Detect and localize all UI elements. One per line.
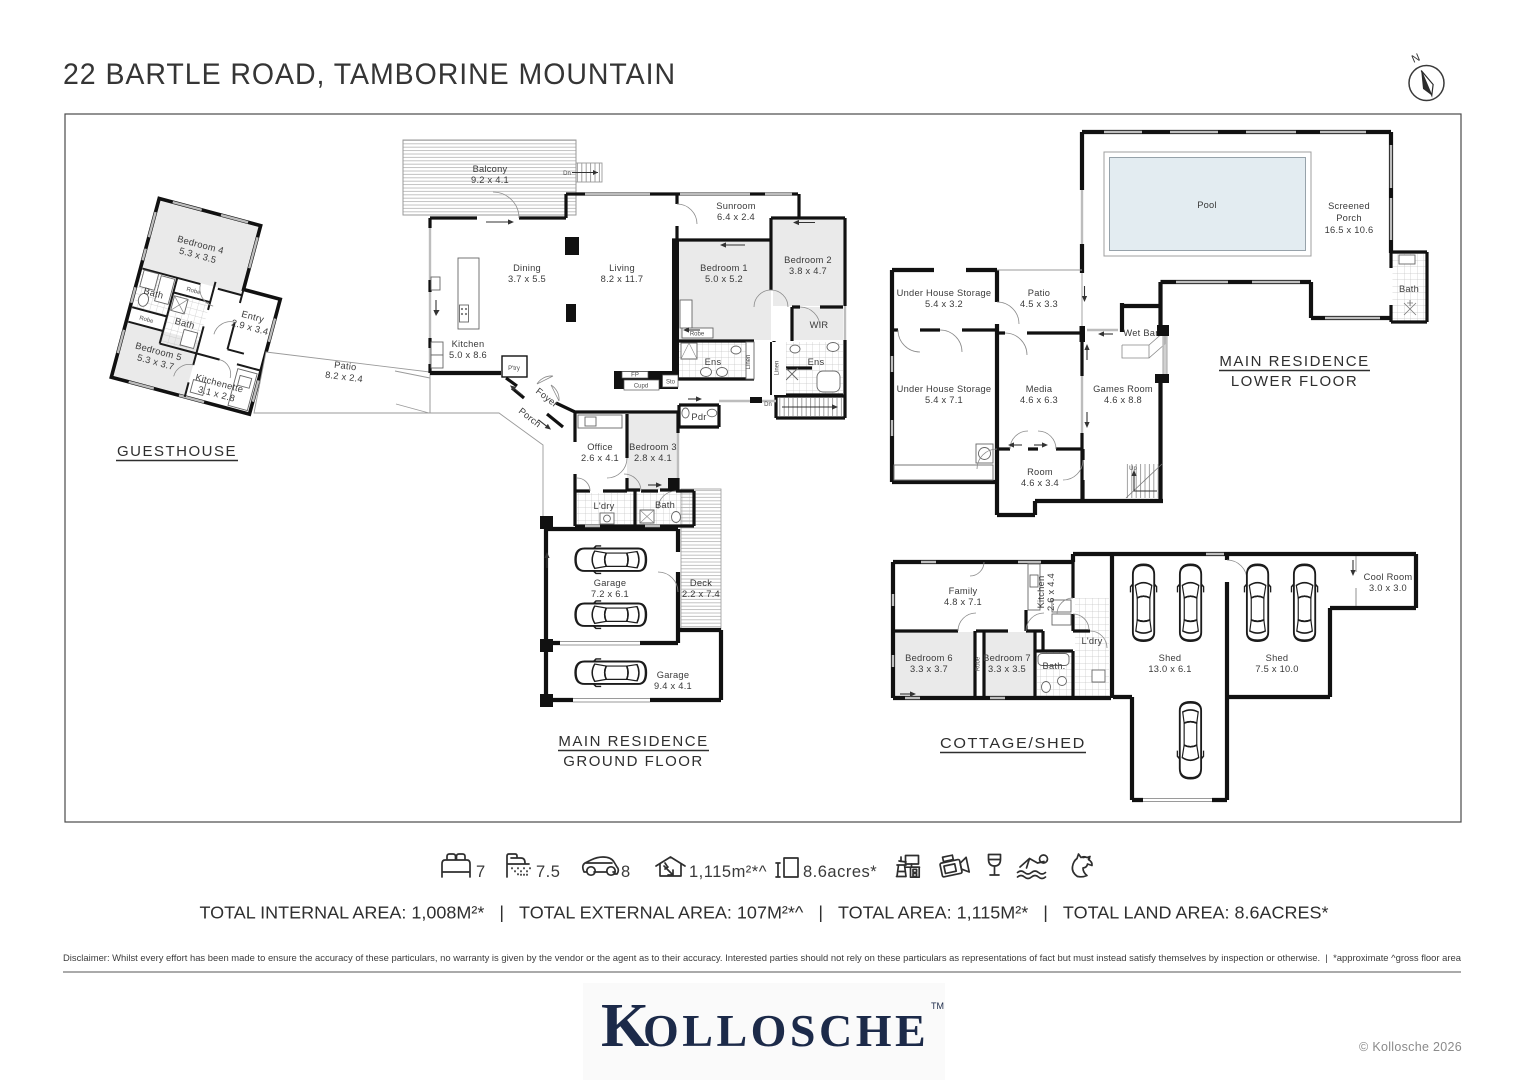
svg-text:Dining: Dining xyxy=(513,263,541,273)
svg-text:Linen: Linen xyxy=(775,361,781,376)
svg-text:13.0 x 6.1: 13.0 x 6.1 xyxy=(1148,664,1191,674)
svg-text:Garage: Garage xyxy=(657,670,690,680)
svg-text:3.7 x 5.5: 3.7 x 5.5 xyxy=(508,274,546,284)
svg-text:Room: Room xyxy=(1027,467,1053,477)
svg-text:COTTAGE/SHED: COTTAGE/SHED xyxy=(940,735,1086,752)
svg-text:Under House Storage: Under House Storage xyxy=(897,288,992,298)
svg-text:5.4 x 3.2: 5.4 x 3.2 xyxy=(925,299,963,309)
svg-text:5.0 x 5.2: 5.0 x 5.2 xyxy=(705,274,743,284)
svg-text:1,115m²*^: 1,115m²*^ xyxy=(689,863,767,881)
svg-text:Robe: Robe xyxy=(690,332,705,338)
svg-text:Balcony: Balcony xyxy=(473,164,508,174)
svg-text:Under House Storage: Under House Storage xyxy=(897,384,992,394)
svg-text:4.6 x 3.4: 4.6 x 3.4 xyxy=(1021,478,1059,488)
svg-text:L'dry: L'dry xyxy=(1081,636,1102,646)
svg-text:K: K xyxy=(601,992,649,1060)
svg-text:Sunroom: Sunroom xyxy=(716,201,755,211)
svg-text:3.3 x 3.5: 3.3 x 3.5 xyxy=(988,664,1026,674)
svg-text:Up: Up xyxy=(1129,466,1137,472)
svg-text:Patio: Patio xyxy=(1028,288,1050,298)
svg-text:GUESTHOUSE: GUESTHOUSE xyxy=(117,443,237,460)
svg-text:LOWER FLOOR: LOWER FLOOR xyxy=(1231,373,1358,390)
svg-text:8.6acres*: 8.6acres* xyxy=(803,863,877,881)
svg-text:6.4 x 2.4: 6.4 x 2.4 xyxy=(717,212,755,222)
svg-text:Office: Office xyxy=(587,442,613,452)
svg-text:16.5 x 10.6: 16.5 x 10.6 xyxy=(1325,225,1374,235)
svg-text:22 BARTLE ROAD, TAMBORINE MOUN: 22 BARTLE ROAD, TAMBORINE MOUNTAIN xyxy=(63,58,676,91)
svg-text:4.8 x 7.1: 4.8 x 7.1 xyxy=(944,597,982,607)
svg-text:4.6 x 6.3: 4.6 x 6.3 xyxy=(1020,395,1058,405)
svg-text:Wet Bar: Wet Bar xyxy=(1123,328,1158,338)
svg-text:Garage: Garage xyxy=(594,578,627,588)
svg-text:Media: Media xyxy=(1026,384,1053,394)
svg-text:Bedroom 3: Bedroom 3 xyxy=(629,442,677,452)
svg-text:Bedroom 1: Bedroom 1 xyxy=(700,263,748,273)
svg-text:Linen: Linen xyxy=(746,355,752,370)
svg-text:3.8 x 4.7: 3.8 x 4.7 xyxy=(789,266,827,276)
svg-text:Shed: Shed xyxy=(1266,653,1289,663)
svg-text:7.5: 7.5 xyxy=(536,863,560,881)
svg-text:Pdr: Pdr xyxy=(691,412,706,422)
svg-text:7.5 x 10.0: 7.5 x 10.0 xyxy=(1255,664,1298,674)
svg-text:Bedroom 2: Bedroom 2 xyxy=(784,255,832,265)
svg-text:Deck: Deck xyxy=(690,578,712,588)
svg-text:Ens: Ens xyxy=(808,357,825,367)
svg-text:© Kollosche 2026: © Kollosche 2026 xyxy=(1359,1040,1462,1054)
svg-text:3.3 x 3.7: 3.3 x 3.7 xyxy=(910,664,948,674)
svg-text:4.5 x 3.3: 4.5 x 3.3 xyxy=(1020,299,1058,309)
svg-text:FP: FP xyxy=(631,373,639,379)
svg-text:Bedroom 6: Bedroom 6 xyxy=(905,653,953,663)
svg-text:Ens: Ens xyxy=(705,357,722,367)
svg-text:Dn: Dn xyxy=(563,171,571,177)
svg-text:Bedroom 7: Bedroom 7 xyxy=(983,653,1031,663)
svg-text:Pool: Pool xyxy=(1197,200,1217,210)
svg-text:Robe: Robe xyxy=(976,656,982,671)
svg-text:P'try: P'try xyxy=(508,366,520,372)
svg-text:OLLOSCHE: OLLOSCHE xyxy=(643,1005,929,1056)
svg-text:Cupd: Cupd xyxy=(634,384,648,390)
svg-text:3.0 x 3.0: 3.0 x 3.0 xyxy=(1369,583,1407,593)
svg-text:Screened: Screened xyxy=(1328,201,1370,211)
svg-text:9.2 x 4.1: 9.2 x 4.1 xyxy=(471,175,509,185)
svg-text:TOTAL INTERNAL AREA: 1,008M²*: TOTAL INTERNAL AREA: 1,008M²* | TOTAL EX… xyxy=(200,903,1329,923)
svg-text:5.4 x 7.1: 5.4 x 7.1 xyxy=(925,395,963,405)
svg-text:Sto: Sto xyxy=(666,380,676,386)
svg-text:Cool Room: Cool Room xyxy=(1364,572,1413,582)
svg-text:7.2 x 6.1: 7.2 x 6.1 xyxy=(591,589,629,599)
svg-text:8: 8 xyxy=(621,863,631,881)
svg-text:4.6 x 8.8: 4.6 x 8.8 xyxy=(1104,395,1142,405)
svg-text:Bath.: Bath. xyxy=(1043,661,1066,671)
svg-text:Family: Family xyxy=(949,586,978,596)
svg-text:8.2 x 11.7: 8.2 x 11.7 xyxy=(601,274,644,284)
svg-text:Shed: Shed xyxy=(1159,653,1182,663)
svg-text:Kitchen: Kitchen xyxy=(1036,576,1046,609)
svg-text:MAIN RESIDENCE: MAIN RESIDENCE xyxy=(1219,353,1369,370)
svg-text:Dn: Dn xyxy=(764,402,772,408)
svg-text:Disclaimer: Whilst every effor: Disclaimer: Whilst every effort has been… xyxy=(63,953,1462,963)
svg-text:Kitchen: Kitchen xyxy=(452,339,485,349)
svg-text:TM: TM xyxy=(931,1001,944,1011)
svg-text:Porch: Porch xyxy=(1336,213,1362,223)
svg-text:9.4 x 4.1: 9.4 x 4.1 xyxy=(654,681,692,691)
svg-text:2.8 x 4.1: 2.8 x 4.1 xyxy=(634,453,672,463)
svg-text:5.0 x 8.6: 5.0 x 8.6 xyxy=(449,350,487,360)
svg-text:Bath: Bath xyxy=(655,500,675,510)
svg-text:Living: Living xyxy=(609,263,635,273)
svg-text:2.6 x 4.1: 2.6 x 4.1 xyxy=(581,453,619,463)
svg-text:2.2 x 7.4: 2.2 x 7.4 xyxy=(682,589,720,599)
svg-text:GROUND FLOOR: GROUND FLOOR xyxy=(563,753,704,770)
svg-text:7: 7 xyxy=(476,863,486,881)
svg-text:Games Room: Games Room xyxy=(1093,384,1153,394)
svg-text:Bath: Bath xyxy=(1399,284,1419,294)
svg-text:L'dry: L'dry xyxy=(593,501,614,511)
svg-text:MAIN RESIDENCE: MAIN RESIDENCE xyxy=(558,733,708,750)
svg-text:2.6 x 4.4: 2.6 x 4.4 xyxy=(1046,573,1056,611)
svg-text:WIR: WIR xyxy=(810,320,829,330)
